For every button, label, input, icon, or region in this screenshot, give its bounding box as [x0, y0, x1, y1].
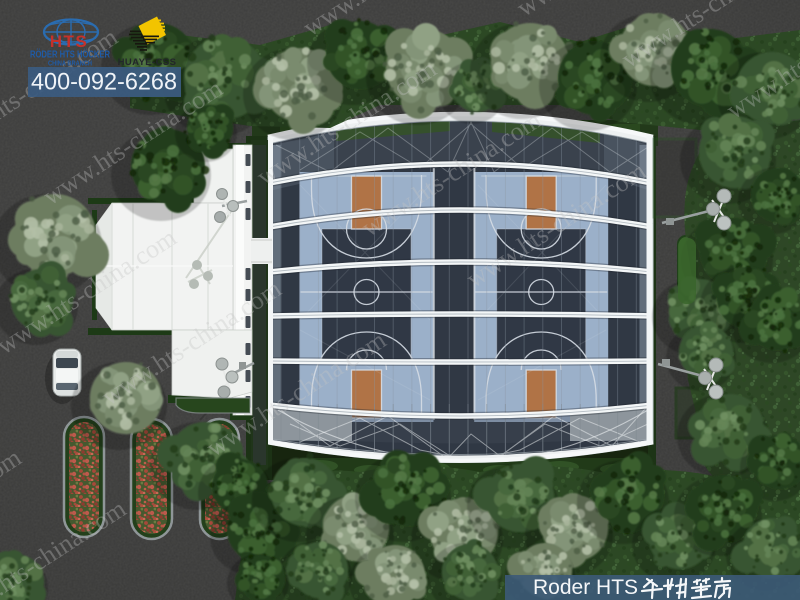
svg-text:400-092-6268: 400-092-6268	[31, 69, 177, 96]
svg-text:HTS: HTS	[50, 32, 89, 51]
svg-text:RÖDER HTS HÖCKER: RÖDER HTS HÖCKER	[30, 50, 110, 61]
svg-text:HUAYE-CSS: HUAYE-CSS	[118, 57, 177, 68]
svg-text:CHINA BRANCH: CHINA BRANCH	[48, 61, 92, 68]
svg-text:Roder HTS: Roder HTS	[533, 576, 638, 599]
